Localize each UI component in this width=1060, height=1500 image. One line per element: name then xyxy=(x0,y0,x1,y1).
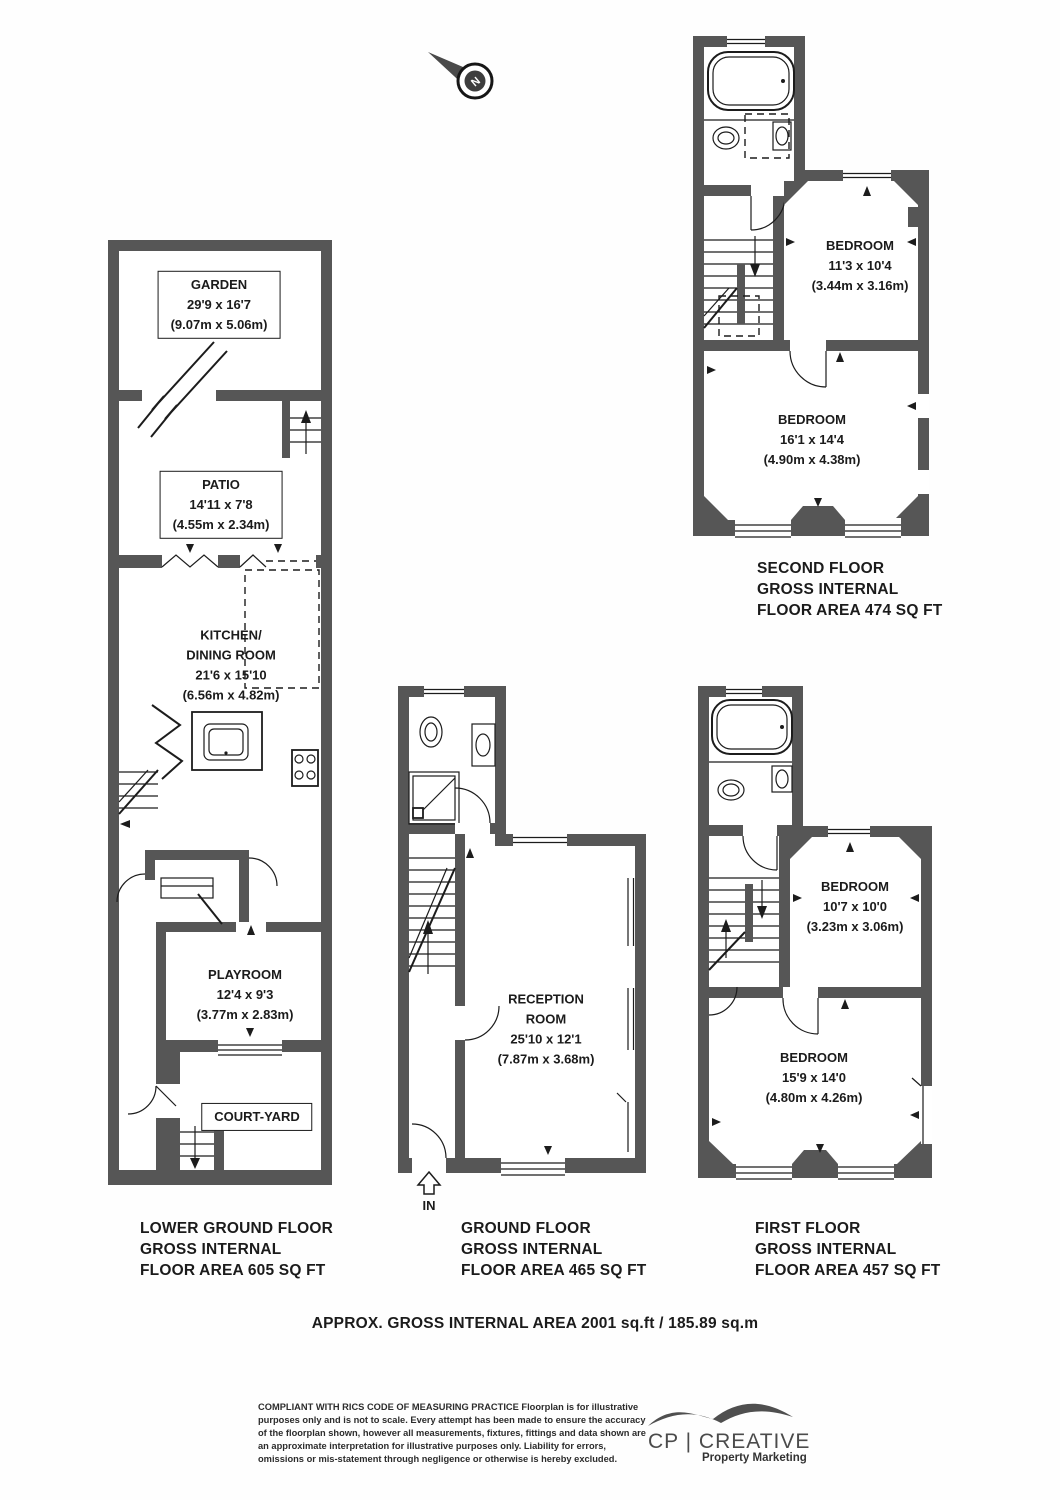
caption-line: GROSS INTERNAL xyxy=(140,1239,333,1260)
second-floor-small-bedroom-label: BEDROOM 11'3 x 10'4 (3.44m x 3.16m) xyxy=(812,236,909,296)
playroom-label: PLAYROOM 12'4 x 9'3 (3.77m x 2.83m) xyxy=(197,965,294,1025)
room-title: GARDEN xyxy=(171,275,268,295)
first-floor-caption: FIRST FLOOR GROSS INTERNAL FLOOR AREA 45… xyxy=(755,1218,940,1281)
room-title: BEDROOM xyxy=(812,236,909,256)
reception-room-label: RECEPTION ROOM 25'10 x 12'1 (7.87m x 3.6… xyxy=(498,990,595,1071)
caption-line: GROSS INTERNAL xyxy=(461,1239,646,1260)
room-dims-imperial: 15'9 x 14'0 xyxy=(766,1068,863,1088)
lower-ground-floor-caption: LOWER GROUND FLOOR GROSS INTERNAL FLOOR … xyxy=(140,1218,333,1281)
room-dims-imperial: 11'3 x 10'4 xyxy=(812,256,909,276)
room-dims-metric: (4.80m x 4.26m) xyxy=(766,1088,863,1108)
lg-patio-stairs-icon xyxy=(282,401,321,458)
second-floor-large-bedroom-label: BEDROOM 16'1 x 14'4 (4.90m x 4.38m) xyxy=(764,410,861,470)
entrance-in-arrow-icon: IN xyxy=(418,1172,440,1213)
room-title: BEDROOM xyxy=(766,1048,863,1068)
room-dims-metric: (3.77m x 2.83m) xyxy=(197,1005,294,1025)
room-title: COURT-YARD xyxy=(214,1107,299,1127)
gross-internal-area-summary: APPROX. GROSS INTERNAL AREA 2001 sq.ft /… xyxy=(300,1315,770,1333)
room-dims-imperial: 29'9 x 16'7 xyxy=(171,295,268,315)
lower-ground-floor-plan xyxy=(106,238,334,1198)
room-title: PLAYROOM xyxy=(197,965,294,985)
first-floor-large-bedroom-label: BEDROOM 15'9 x 14'0 (4.80m x 4.26m) xyxy=(766,1048,863,1108)
caption-line: SECOND FLOOR xyxy=(757,558,942,579)
courtyard-label: COURT-YARD xyxy=(201,1103,312,1131)
room-dims-metric: (6.56m x 4.82m) xyxy=(183,686,280,706)
room-dims-imperial: 25'10 x 12'1 xyxy=(498,1030,595,1050)
room-title: DINING ROOM xyxy=(183,646,280,666)
room-title: RECEPTION xyxy=(498,990,595,1010)
caption-line: FLOOR AREA 457 SQ FT xyxy=(755,1260,940,1281)
floorplan-page: N xyxy=(0,0,1060,1500)
room-dims-metric: (4.55m x 2.34m) xyxy=(173,515,270,535)
entrance-in-label: IN xyxy=(423,1198,436,1213)
hob-icon xyxy=(292,750,318,786)
kitchen-dining-label: KITCHEN/ DINING ROOM 21'6 x 15'10 (6.56m… xyxy=(183,626,280,707)
room-title: ROOM xyxy=(498,1010,595,1030)
room-dims-imperial: 14'11 x 7'8 xyxy=(173,495,270,515)
caption-line: FIRST FLOOR xyxy=(755,1218,940,1239)
room-dims-metric: (4.90m x 4.38m) xyxy=(764,450,861,470)
caption-line: LOWER GROUND FLOOR xyxy=(140,1218,333,1239)
room-title: BEDROOM xyxy=(807,877,904,897)
caption-line: FLOOR AREA 605 SQ FT xyxy=(140,1260,333,1281)
room-title: BEDROOM xyxy=(764,410,861,430)
cp-creative-tagline: Property Marketing xyxy=(702,1452,807,1464)
room-dims-metric: (3.23m x 3.06m) xyxy=(807,917,904,937)
room-dims-imperial: 10'7 x 10'0 xyxy=(807,897,904,917)
room-dims-metric: (3.44m x 3.16m) xyxy=(812,276,909,296)
room-dims-imperial: 21'6 x 15'10 xyxy=(183,666,280,686)
first-floor-small-bedroom-label: BEDROOM 10'7 x 10'0 (3.23m x 3.06m) xyxy=(807,877,904,937)
garden-label: GARDEN 29'9 x 16'7 (9.07m x 5.06m) xyxy=(158,271,281,339)
disclaimer-lead: COMPLIANT WITH RICS CODE OF MEASURING PR… xyxy=(258,1402,519,1412)
room-title: PATIO xyxy=(173,475,270,495)
room-dims-imperial: 16'1 x 14'4 xyxy=(764,430,861,450)
caption-line: GROUND FLOOR xyxy=(461,1218,646,1239)
room-title: KITCHEN/ xyxy=(183,626,280,646)
room-dims-metric: (7.87m x 3.68m) xyxy=(498,1050,595,1070)
cp-creative-brand: CP | CREATIVE xyxy=(648,1430,810,1454)
rics-disclaimer: COMPLIANT WITH RICS CODE OF MEASURING PR… xyxy=(258,1401,648,1466)
cp-creative-swoosh-icon xyxy=(645,1398,797,1430)
first-floor-plan xyxy=(698,686,932,1206)
caption-line: GROSS INTERNAL xyxy=(755,1239,940,1260)
caption-line: FLOOR AREA 465 SQ FT xyxy=(461,1260,646,1281)
sf-bathroom-window xyxy=(727,36,765,47)
caption-line: FLOOR AREA 474 SQ FT xyxy=(757,600,942,621)
kitchen-island-sink-icon xyxy=(192,712,262,770)
patio-label: PATIO 14'11 x 7'8 (4.55m x 2.34m) xyxy=(160,471,283,539)
caption-line: GROSS INTERNAL xyxy=(757,579,942,600)
north-compass-icon: N xyxy=(420,45,500,105)
gf-cloakroom-window xyxy=(424,686,464,697)
second-floor-caption: SECOND FLOOR GROSS INTERNAL FLOOR AREA 4… xyxy=(757,558,942,621)
room-dims-metric: (9.07m x 5.06m) xyxy=(171,315,268,335)
ground-floor-caption: GROUND FLOOR GROSS INTERNAL FLOOR AREA 4… xyxy=(461,1218,646,1281)
ff-bathroom-window xyxy=(726,686,762,697)
ground-floor-plan: IN xyxy=(398,686,646,1232)
room-dims-imperial: 12'4 x 9'3 xyxy=(197,985,294,1005)
